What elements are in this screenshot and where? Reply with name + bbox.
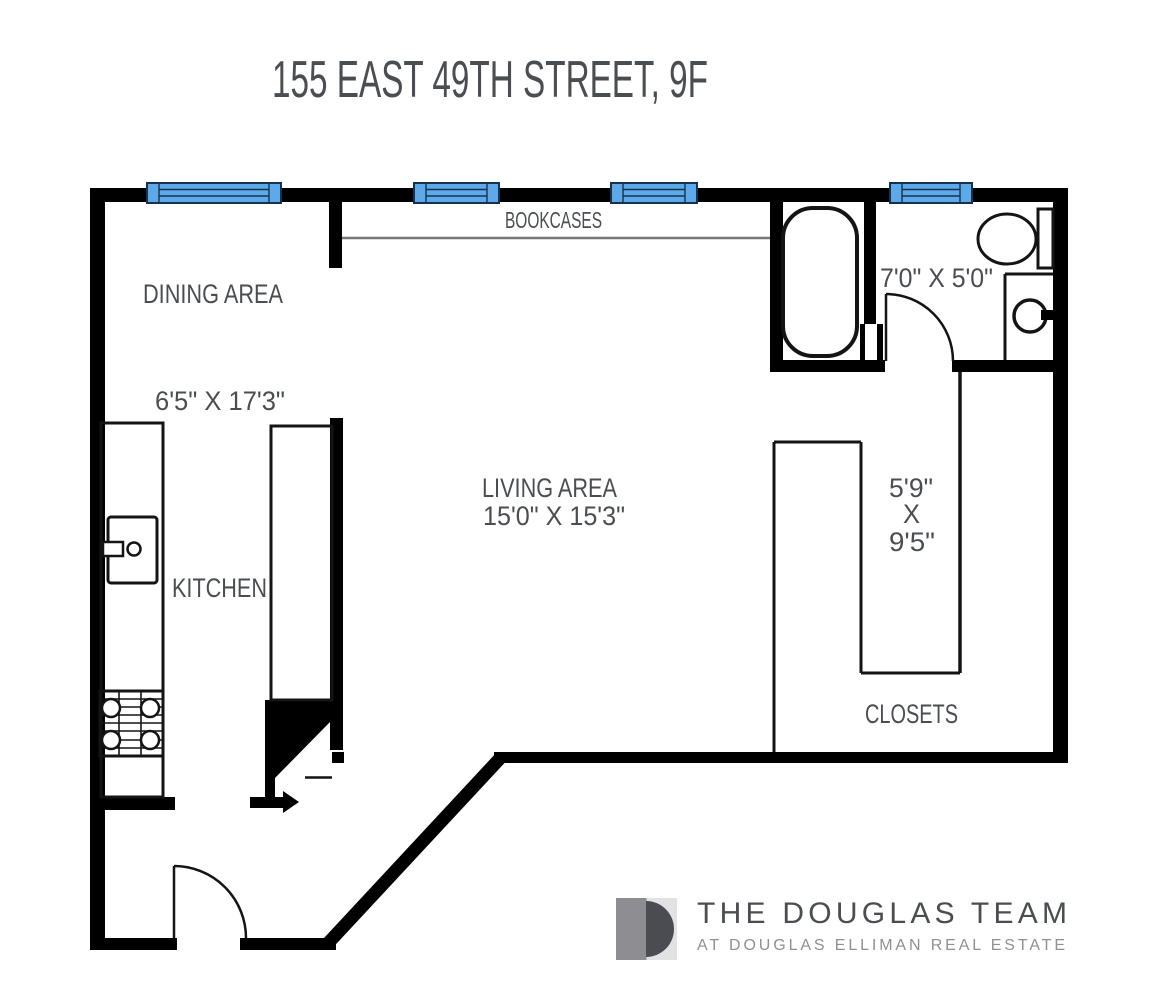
floorplan-canvas: 155 EAST 49TH STREET, 9F [0, 0, 1168, 1000]
brand-logo: THE DOUGLAS TEAM AT DOUGLAS ELLIMAN REAL… [616, 897, 1067, 960]
kitchen-sink-faucet-icon [103, 542, 123, 556]
wall-bottom-foyer-left [90, 938, 177, 950]
entry-door-swing [174, 866, 246, 938]
kitchen-counter-right [271, 426, 332, 700]
window-bathroom [890, 183, 972, 203]
wall-tub-partition-line-left [860, 324, 865, 362]
wall-stub-dining-bookcases [329, 202, 342, 268]
stove-burner-icon [102, 731, 120, 749]
label-closet-dim-x: X [903, 499, 920, 529]
stove-icon [100, 691, 163, 756]
label-living-dim: 15'0" X 15'3" [483, 501, 625, 531]
wall-kitchen-south [103, 797, 175, 810]
wall-diagonal [324, 752, 507, 947]
label-living-area: LIVING AREA [482, 473, 617, 503]
label-closets: CLOSETS [865, 699, 958, 729]
brand-team-name: THE DOUGLAS TEAM [697, 897, 1067, 930]
entry-closet-south-bar-point [283, 791, 299, 813]
window-bookcase-left [414, 183, 499, 203]
wall-right [1053, 188, 1068, 763]
label-dining-area: DINING AREA [143, 279, 283, 309]
bath-sink-faucet-icon [1041, 310, 1054, 320]
bathroom-door-swing [886, 294, 953, 361]
brand-tagline: AT DOUGLAS ELLIMAN REAL ESTATE [697, 937, 1065, 954]
wall-tub-partition [864, 202, 876, 324]
wall-bottom-living [494, 752, 1068, 763]
wall-bathroom-south-left [770, 360, 885, 372]
wall-bathroom-south-right [952, 360, 1053, 372]
bathtub-icon [783, 208, 857, 356]
page-title: 155 EAST 49TH STREET, 9F [272, 51, 708, 109]
wall-bottom-foyer-mid [240, 938, 333, 950]
wall-entry-closet [265, 700, 330, 797]
toilet-bowl-icon [978, 214, 1036, 264]
window-frame [414, 183, 499, 203]
entry-closet-south-bar [250, 797, 283, 808]
stove-burner-icon [102, 699, 120, 717]
window-dining [147, 183, 281, 203]
wall-left [90, 188, 105, 950]
stove-burner-icon [141, 731, 159, 749]
label-kitchen: KITCHEN [172, 573, 267, 603]
kitchen-sink-knob-icon [128, 543, 141, 556]
wall-tub-partition-line-right [877, 324, 883, 362]
entry-closet-door-jamb [332, 752, 344, 763]
label-bathroom-dim: 7'0" X 5'0" [880, 263, 993, 293]
window-frame [611, 183, 697, 203]
logo-square-left [616, 898, 647, 960]
window-bookcase-right [611, 183, 697, 203]
toilet-tank-icon [1038, 209, 1053, 268]
stove-burner-icon [141, 699, 159, 717]
label-closet-dim-length: 9'5" [889, 527, 935, 557]
label-bookcases: BOOKCASES [505, 207, 602, 233]
window-frame [147, 183, 281, 203]
label-dining-dim: 6'5" X 17'3" [155, 386, 285, 416]
